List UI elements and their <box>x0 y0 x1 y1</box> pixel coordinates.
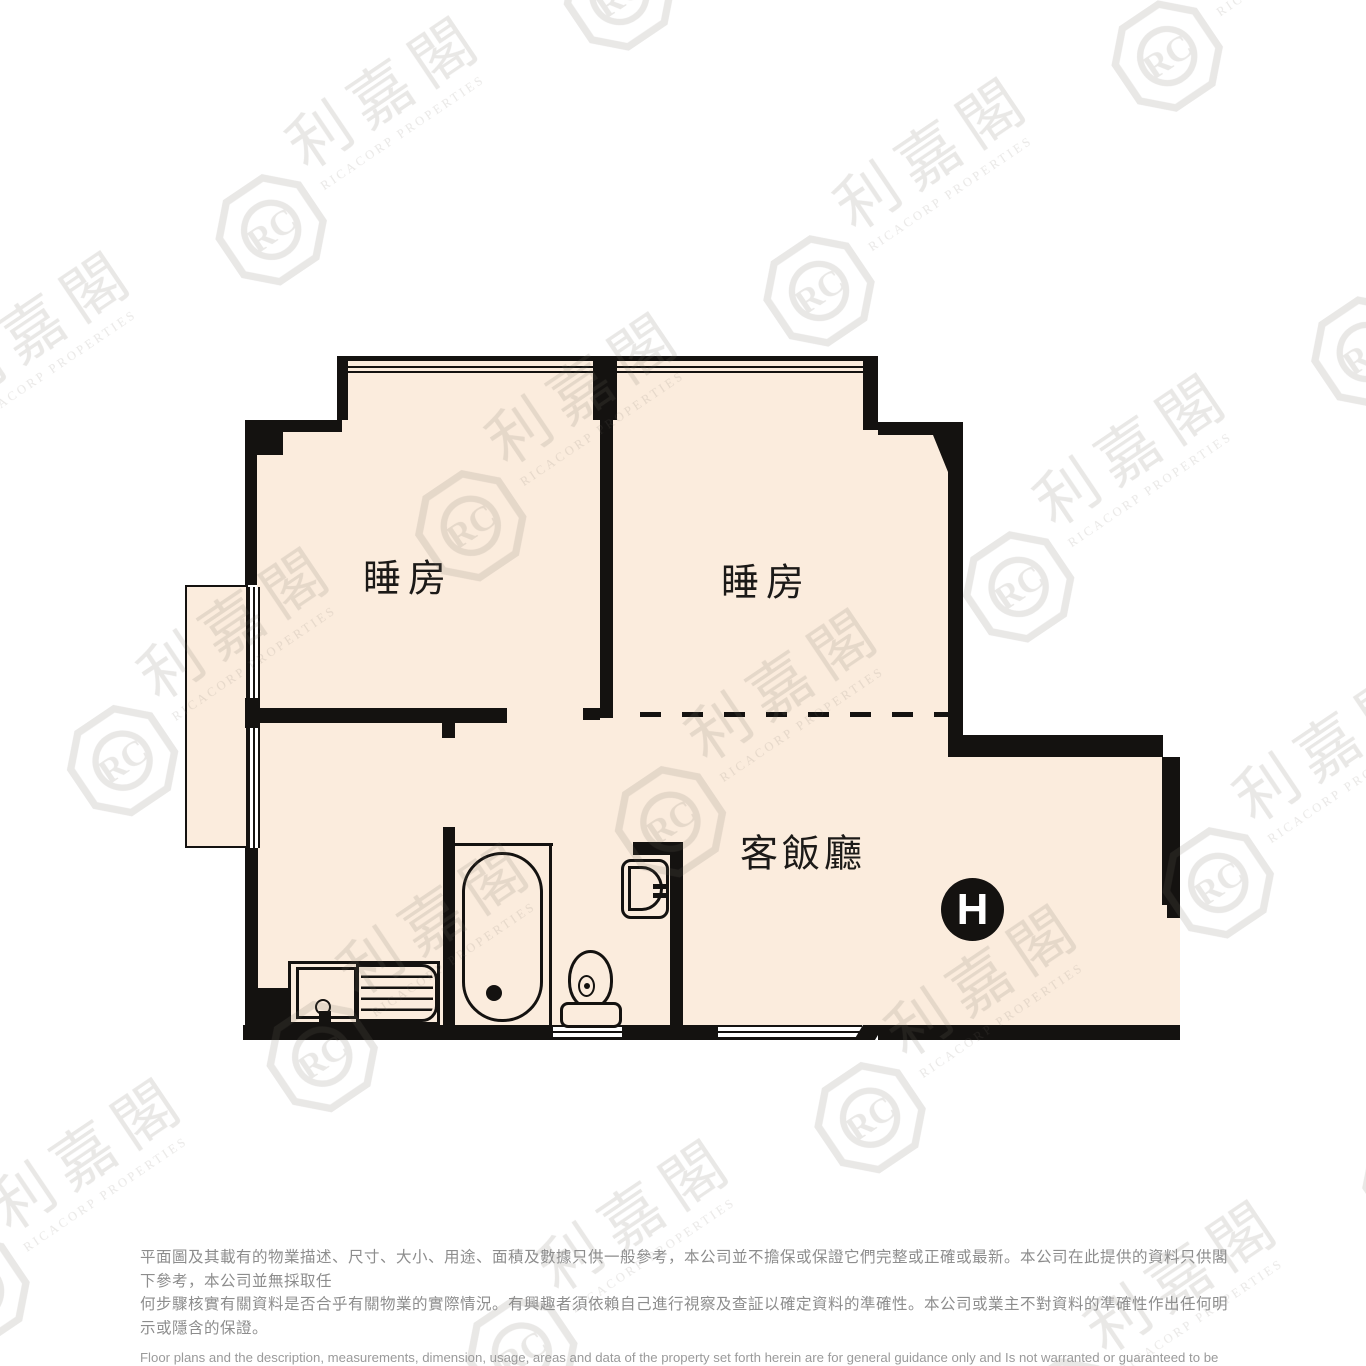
wall <box>583 708 600 720</box>
wall <box>600 420 613 718</box>
kitchen-tap-base <box>319 1011 331 1024</box>
bedroom-1-label: 睡房 <box>363 548 453 603</box>
wall <box>245 848 258 1025</box>
bathtub-surround <box>455 843 553 846</box>
wall <box>258 988 288 1025</box>
wall <box>257 432 283 455</box>
bathtub-drain <box>486 985 502 1001</box>
h-marker-label: H <box>957 885 989 935</box>
wall <box>337 356 348 420</box>
bedroom-2-east <box>878 435 948 718</box>
bedroom-2-label: 睡房 <box>721 552 811 607</box>
window-living <box>718 1025 862 1040</box>
window-bedroom-1 <box>348 356 593 373</box>
bay-window <box>185 585 248 848</box>
washbasin-tap <box>653 884 669 889</box>
disclaimer-chinese: 平面圖及其載有的物業描述、尺寸、大小、用途、面積及數據只供一般參考，本公司並不擔… <box>140 1246 1232 1340</box>
wall <box>878 1025 1180 1040</box>
wall <box>948 435 963 757</box>
living-dining-label: 客飯廳 <box>740 823 866 878</box>
page: 睡房 睡房 客飯廳 H RC利嘉閣RICACORP PROPERTIESRC利嘉… <box>0 0 1366 1366</box>
wall <box>443 827 455 1025</box>
wall <box>243 1025 553 1040</box>
wall <box>245 420 257 585</box>
toilet-dot <box>584 983 590 989</box>
wall <box>245 708 507 723</box>
wall <box>622 1025 718 1040</box>
wall <box>442 723 455 738</box>
disclaimer-line: 平面圖及其載有的物業描述、尺寸、大小、用途、面積及數據只供一般參考，本公司並不擔… <box>140 1246 1232 1293</box>
wall <box>1162 757 1180 905</box>
wall <box>593 356 617 420</box>
wall <box>952 735 1163 757</box>
washbasin-tap <box>653 893 669 898</box>
wall <box>878 422 963 435</box>
disclaimer-text: 平面圖及其載有的物業描述、尺寸、大小、用途、面積及數據只供一般參考，本公司並不擔… <box>140 1246 1232 1366</box>
drainboard-icon <box>356 964 438 1022</box>
toilet-tank-icon <box>560 1002 622 1028</box>
wall <box>863 356 878 430</box>
bathtub-surround <box>549 843 552 1025</box>
window-bedroom-2 <box>617 356 863 373</box>
window-bay-upper <box>248 587 260 698</box>
window-bay-lower <box>248 728 260 848</box>
bedroom-2 <box>613 373 878 718</box>
bathtub-icon <box>462 852 543 1022</box>
wall <box>245 420 342 432</box>
floor-plan: 睡房 睡房 客飯廳 H <box>0 0 1366 1366</box>
wall <box>1167 905 1180 918</box>
dashed-partition-line <box>640 712 948 717</box>
disclaimer-english: Floor plans and the description, measure… <box>140 1349 1232 1366</box>
disclaimer-line: Floor plans and the description, measure… <box>140 1349 1232 1366</box>
h-marker: H <box>941 878 1004 941</box>
disclaimer-line: 何步驟核實有關資料是否合乎有關物業的實際情況。有興趣者須依賴自己進行視察及查証以… <box>140 1293 1232 1340</box>
wall <box>670 842 683 1025</box>
